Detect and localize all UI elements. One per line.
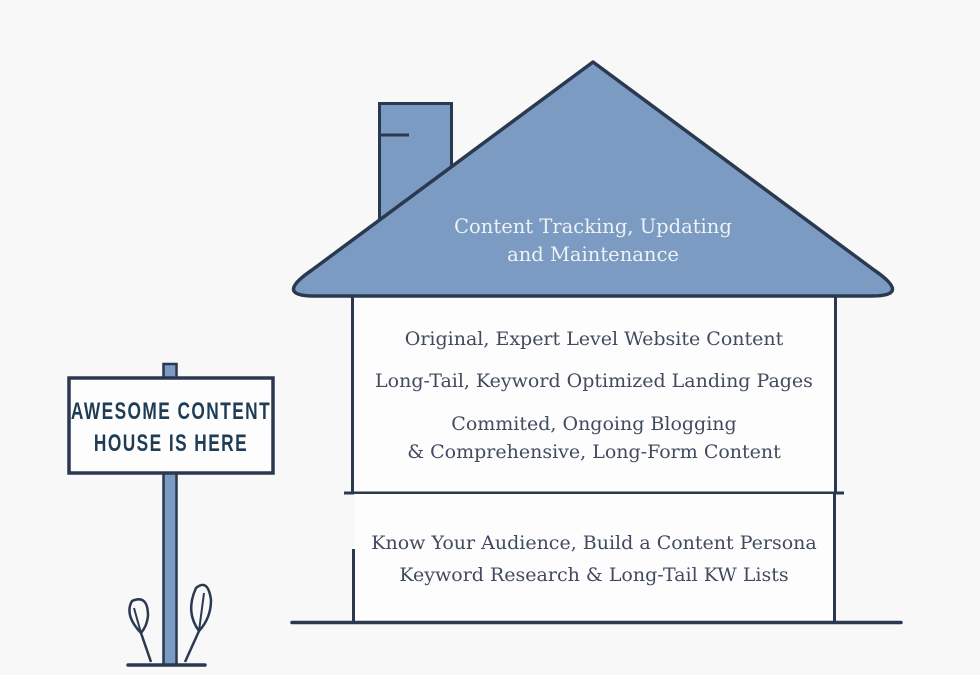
roof-label: Content Tracking, Updating and Maintenan…	[393, 213, 793, 269]
sign-label: AWESOME CONTENT HOUSE IS HERE	[69, 396, 273, 460]
sprout-right-icon	[185, 585, 211, 662]
sign-label-line1: AWESOME CONTENT	[69, 396, 273, 428]
sign-label-line2: HOUSE IS HERE	[69, 428, 273, 460]
upper-floor-item-3: Commited, Ongoing Blogging & Comprehensi…	[352, 410, 836, 466]
content-house-diagram: Content Tracking, Updating and Maintenan…	[0, 0, 980, 675]
foundation-item-1: Know Your Audience, Build a Content Pers…	[352, 530, 836, 556]
upper-floor-item-2: Long-Tail, Keyword Optimized Landing Pag…	[352, 368, 836, 394]
foundation-box	[354, 494, 834, 622]
upper-floor-item-3-line2: & Comprehensive, Long-Form Content	[352, 438, 836, 466]
foundation-item-2: Keyword Research & Long-Tail KW Lists	[352, 562, 836, 588]
upper-floor-item-1: Original, Expert Level Website Content	[352, 326, 836, 352]
roof-label-line2: and Maintenance	[393, 241, 793, 269]
upper-floor-item-3-line1: Commited, Ongoing Blogging	[352, 410, 836, 438]
sprout-left-icon	[129, 599, 151, 662]
roof-label-line1: Content Tracking, Updating	[393, 213, 793, 241]
